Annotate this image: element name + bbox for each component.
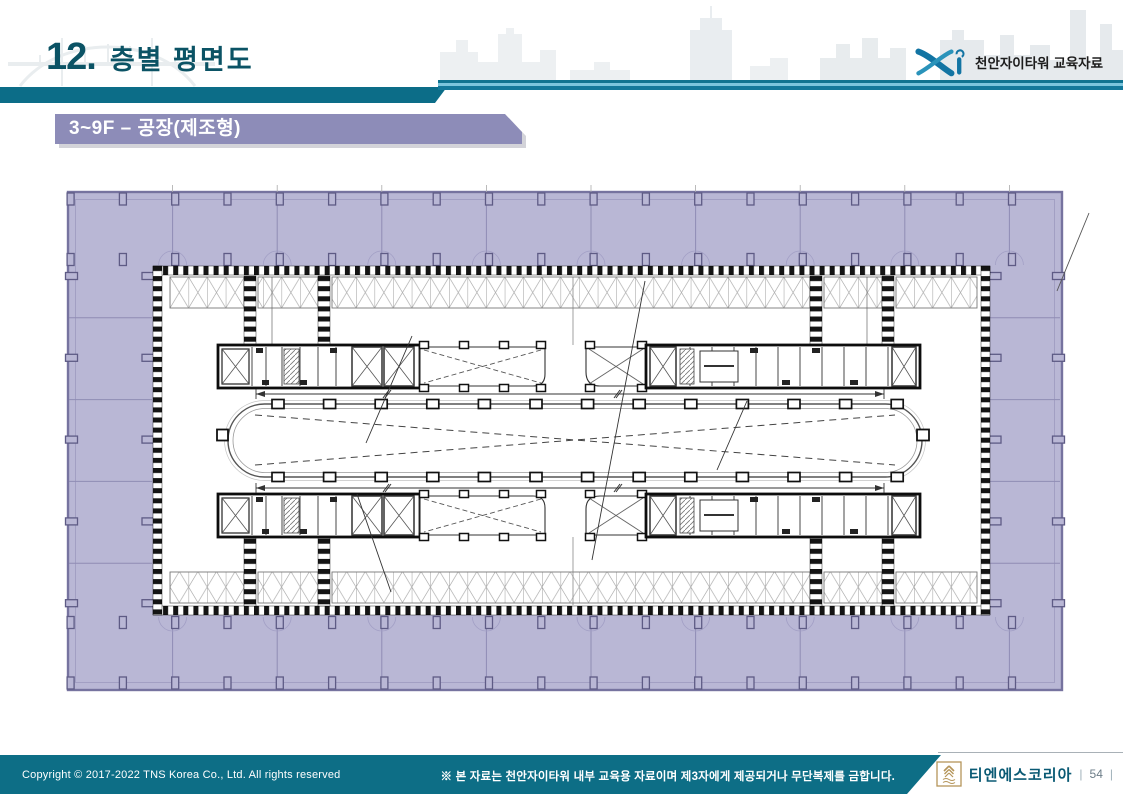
slide-root: 12. 층별 평면도 천안자이타워 교육자료 3~9F – 공장(제조형) Co… [0,0,1123,794]
footer-company-name: 티엔에스코리아 [969,764,1073,785]
footer-page-number: 54 [1090,767,1103,781]
floor-plan-drawing [0,0,1123,794]
footer-page-separator: | [1110,767,1113,781]
footer-company-block: 티엔에스코리아 | 54 | [936,757,1113,791]
footer-notice: ※ 본 자료는 천안자이타워 내부 교육용 자료이며 제3자에게 제공되거나 무… [441,768,896,784]
floor-plan-area [0,0,1123,794]
footer-page-separator: | [1079,767,1082,781]
footer-divider-line [938,752,1123,753]
tns-logo-icon [936,761,962,787]
footer-copyright: Copyright © 2017-2022 TNS Korea Co., Ltd… [22,769,340,781]
